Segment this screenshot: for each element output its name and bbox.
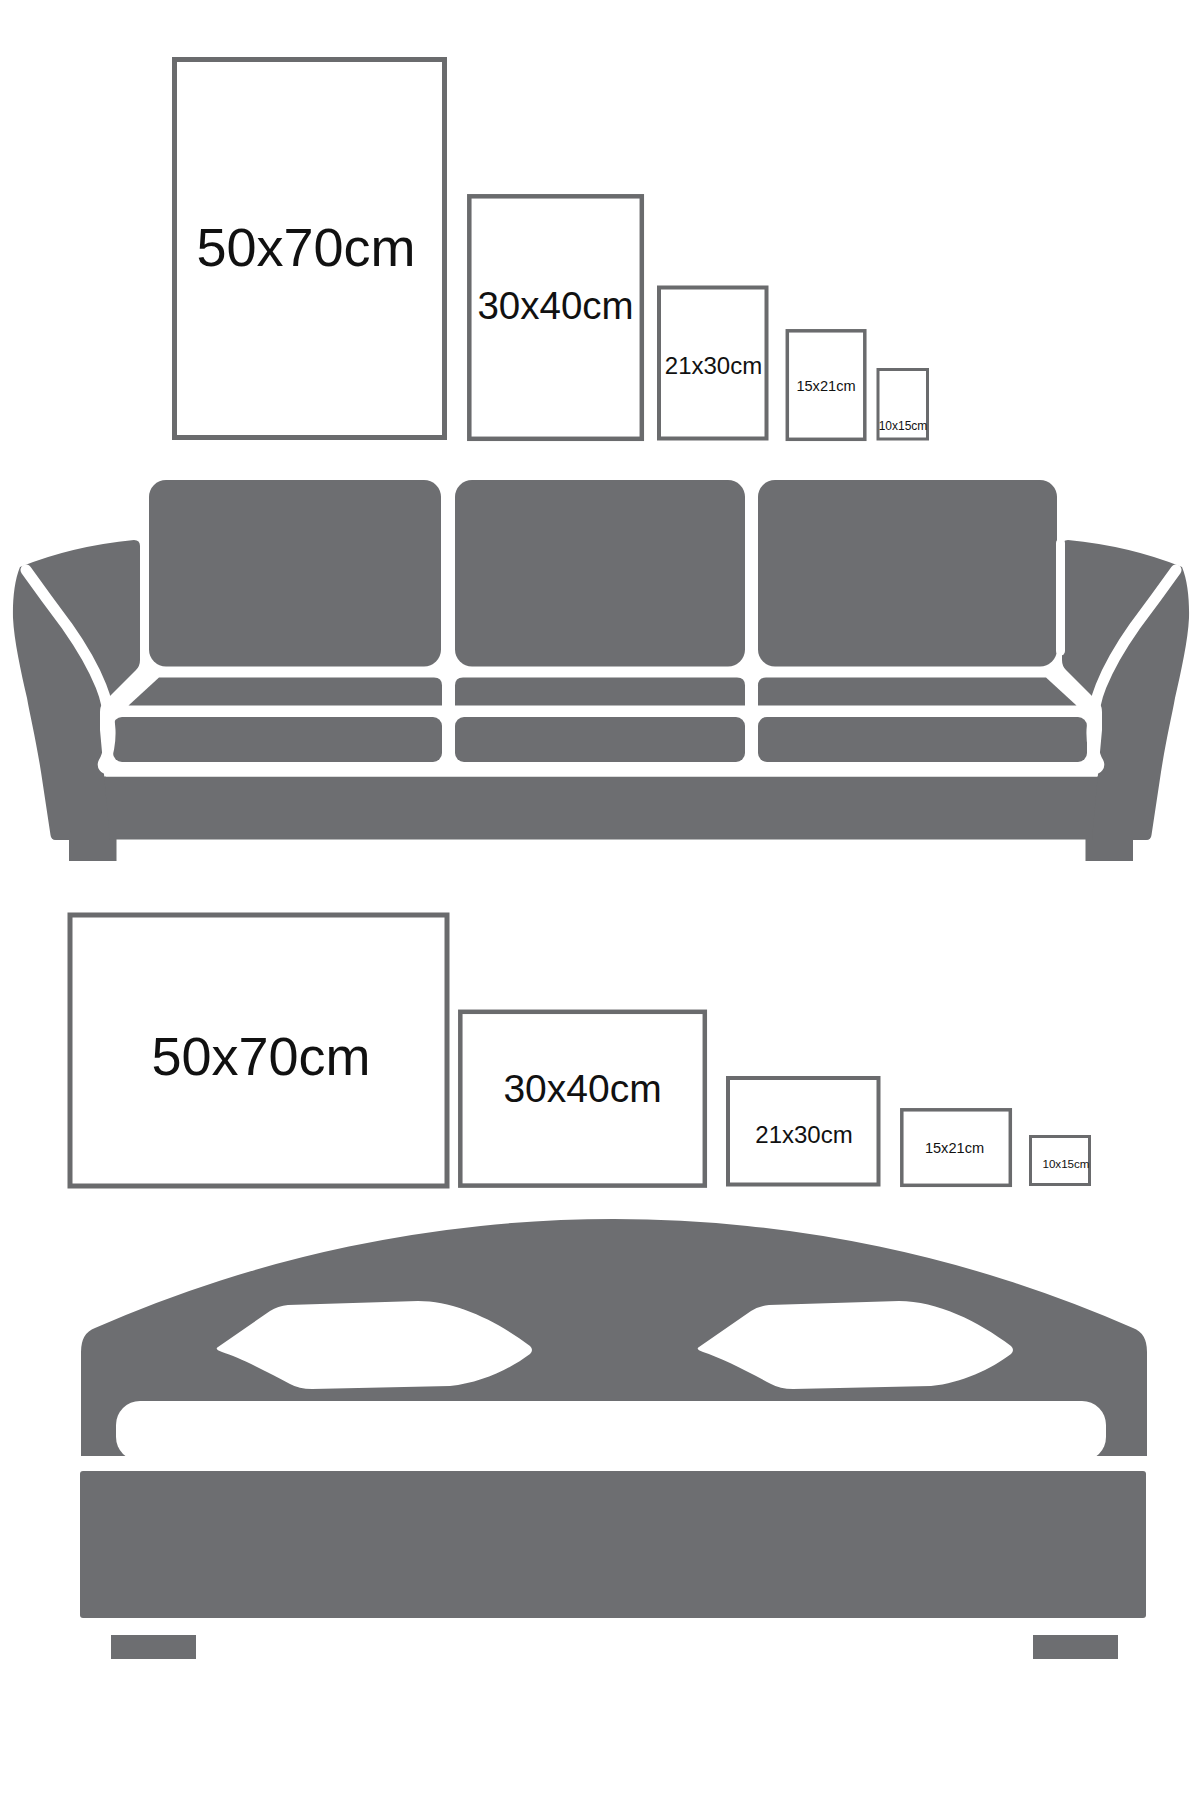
svg-text:30x40cm: 30x40cm xyxy=(503,1067,661,1110)
svg-text:30x40cm: 30x40cm xyxy=(477,284,633,327)
svg-text:15x21cm: 15x21cm xyxy=(796,378,855,394)
svg-text:10x15cm: 10x15cm xyxy=(879,419,928,433)
svg-text:15x21cm: 15x21cm xyxy=(925,1140,984,1156)
svg-text:50x70cm: 50x70cm xyxy=(196,217,415,277)
svg-text:50x70cm: 50x70cm xyxy=(151,1026,370,1086)
svg-text:21x30cm: 21x30cm xyxy=(665,352,762,379)
svg-text:21x30cm: 21x30cm xyxy=(755,1121,852,1148)
svg-text:10x15cm: 10x15cm xyxy=(1042,1157,1089,1170)
